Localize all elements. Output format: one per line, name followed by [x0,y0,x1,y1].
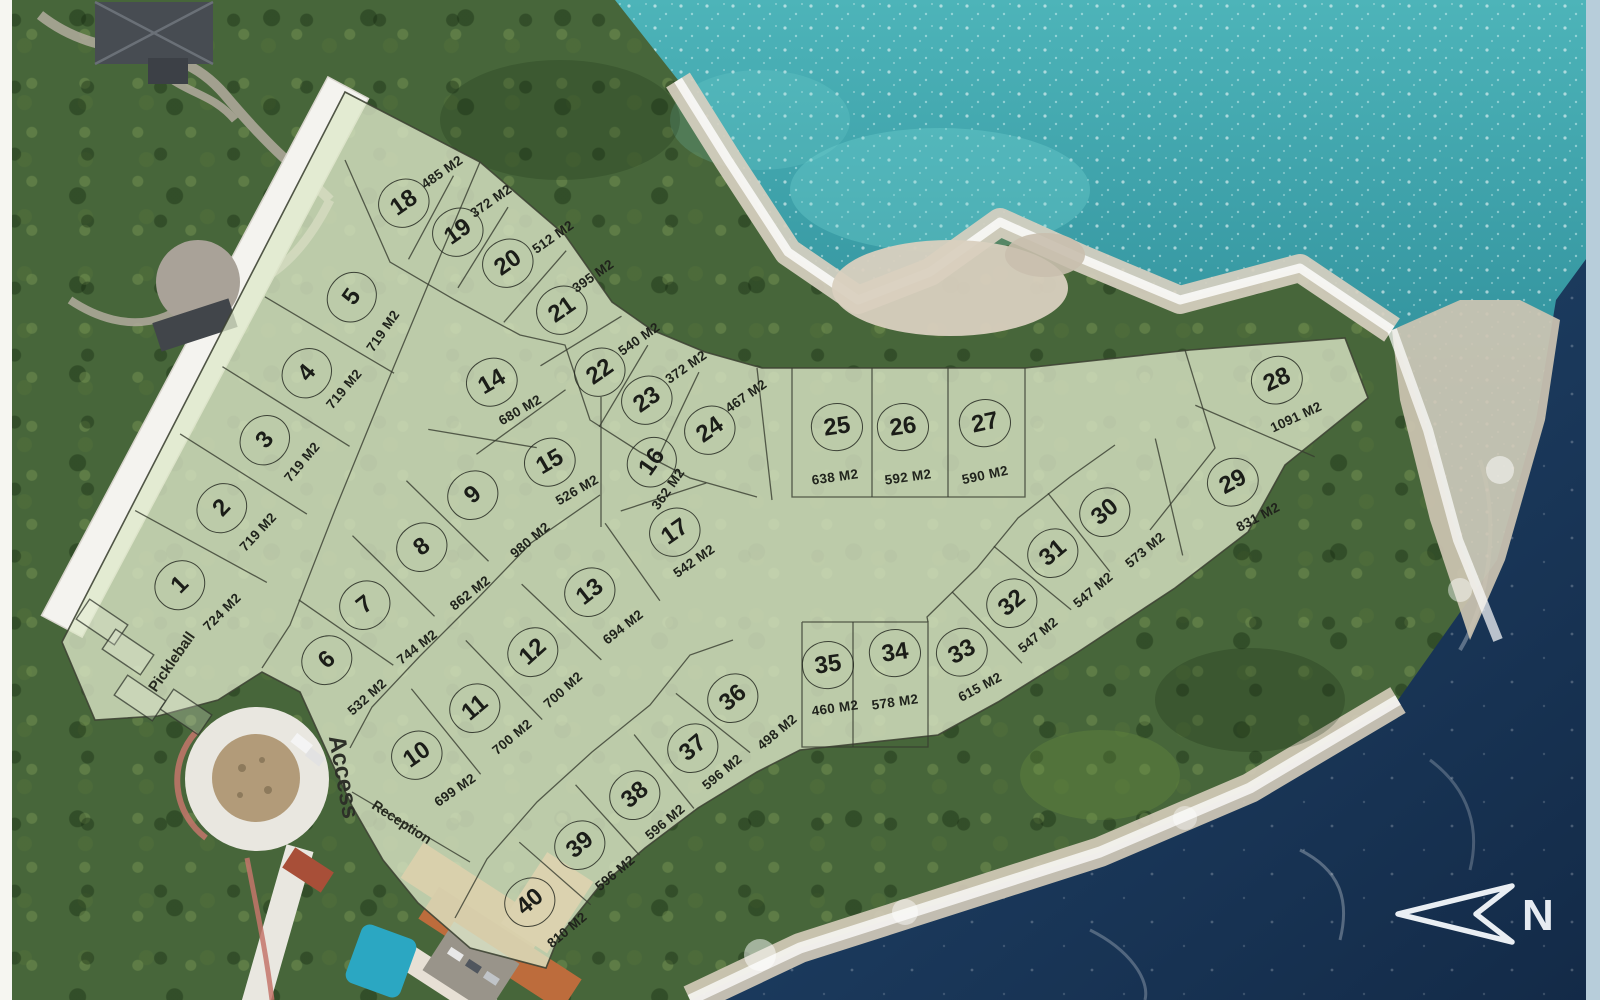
lot-marker-1: 1 [154,561,206,609]
lot-marker-27: 27 [959,399,1011,447]
lot-marker-14: 14 [466,358,518,406]
lot-marker-13: 13 [564,568,616,616]
lot-number: 29 [1199,449,1267,516]
lot-marker-4: 4 [281,349,333,397]
lot-marker-3: 3 [239,416,291,464]
lot-marker-18: 18 [378,179,430,227]
lot-marker-29: 29 [1207,458,1259,506]
lot-marker-40: 40 [504,878,556,926]
lot-marker-9: 9 [447,471,499,519]
lot-marker-7: 7 [339,581,391,629]
lot-number: 28 [1243,347,1310,412]
lot-marker-28: 28 [1251,356,1303,404]
lot-marker-10: 10 [391,731,443,779]
lot-marker-11: 11 [449,684,501,732]
lot-marker-31: 31 [1027,529,1079,577]
lot-marker-36: 36 [707,674,759,722]
lot-marker-2: 2 [196,484,248,532]
lot-marker-26: 26 [877,403,929,451]
north-arrow: N [1390,878,1570,950]
left-border-strip [0,0,12,1000]
site-plan-map: 1724 M22719 M23719 M24719 M25719 M26532 … [0,0,1600,1000]
north-letter: N [1522,891,1554,940]
north-arrow-icon [1398,886,1512,942]
lot-marker-24: 24 [684,406,736,454]
lot-number: 34 [866,626,924,681]
lot-number: 27 [955,394,1016,452]
lot-marker-22: 22 [574,348,626,396]
lot-marker-30: 30 [1079,488,1131,536]
lot-number: 25 [808,400,866,455]
lot-marker-6: 6 [301,636,353,684]
lot-marker-8: 8 [396,523,448,571]
lot-marker-32: 32 [986,579,1038,627]
lot-marker-33: 33 [936,628,988,676]
lot-number: 26 [874,400,932,455]
lot-marker-23: 23 [621,376,673,424]
lot-marker-12: 12 [507,628,559,676]
lot-marker-34: 34 [869,629,921,677]
lot-marker-17: 17 [649,508,701,556]
lot-marker-39: 39 [554,821,606,869]
lot-marker-20: 20 [482,239,534,287]
lot-marker-37: 37 [667,724,719,772]
lot-marker-25: 25 [811,403,863,451]
right-border-strip [1586,0,1600,1000]
lot-marker-38: 38 [609,771,661,819]
lot-marker-5: 5 [326,273,378,321]
lot-marker-35: 35 [802,641,854,689]
lot-marker-15: 15 [524,438,576,486]
lot-number: 35 [799,638,857,693]
